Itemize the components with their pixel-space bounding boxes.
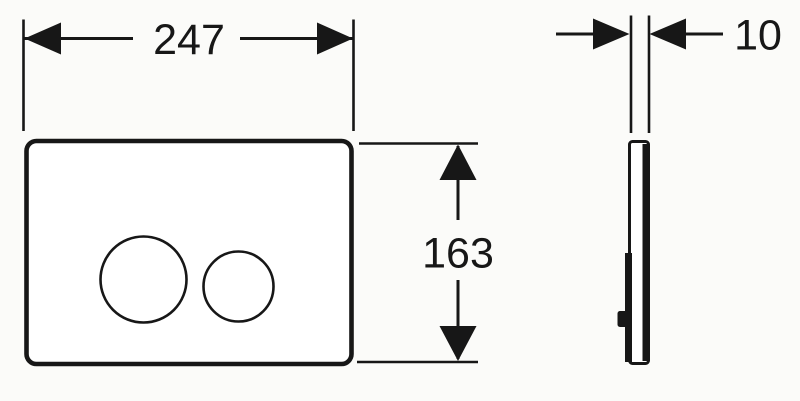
- width-dimension-value: 247: [153, 16, 225, 64]
- large-flush-button: [101, 237, 187, 323]
- dimension-drawing-canvas: 247 163 10: [0, 0, 800, 401]
- technical-drawing: 247 163 10: [0, 0, 800, 401]
- height-dimension-value: 163: [422, 230, 494, 278]
- depth-dimension-value: 10: [734, 12, 782, 60]
- side-profile-front-face: [643, 144, 649, 361]
- width-arrow-right-icon: [317, 23, 353, 55]
- small-flush-button: [204, 252, 274, 322]
- height-dimension: 163: [357, 144, 494, 363]
- depth-arrow-right-icon: [650, 19, 687, 50]
- depth-arrow-left-icon: [593, 19, 630, 50]
- width-dimension: 247: [24, 16, 354, 131]
- side-view: [618, 142, 649, 364]
- height-arrow-up-icon: [440, 145, 477, 181]
- mounting-tab: [618, 311, 630, 327]
- depth-dimension: 10: [556, 12, 782, 134]
- front-view: [27, 141, 352, 364]
- width-arrow-left-icon: [25, 23, 62, 55]
- flush-plate-outline: [27, 141, 352, 364]
- height-arrow-down-icon: [440, 326, 477, 361]
- side-profile-back-face: [625, 253, 632, 362]
